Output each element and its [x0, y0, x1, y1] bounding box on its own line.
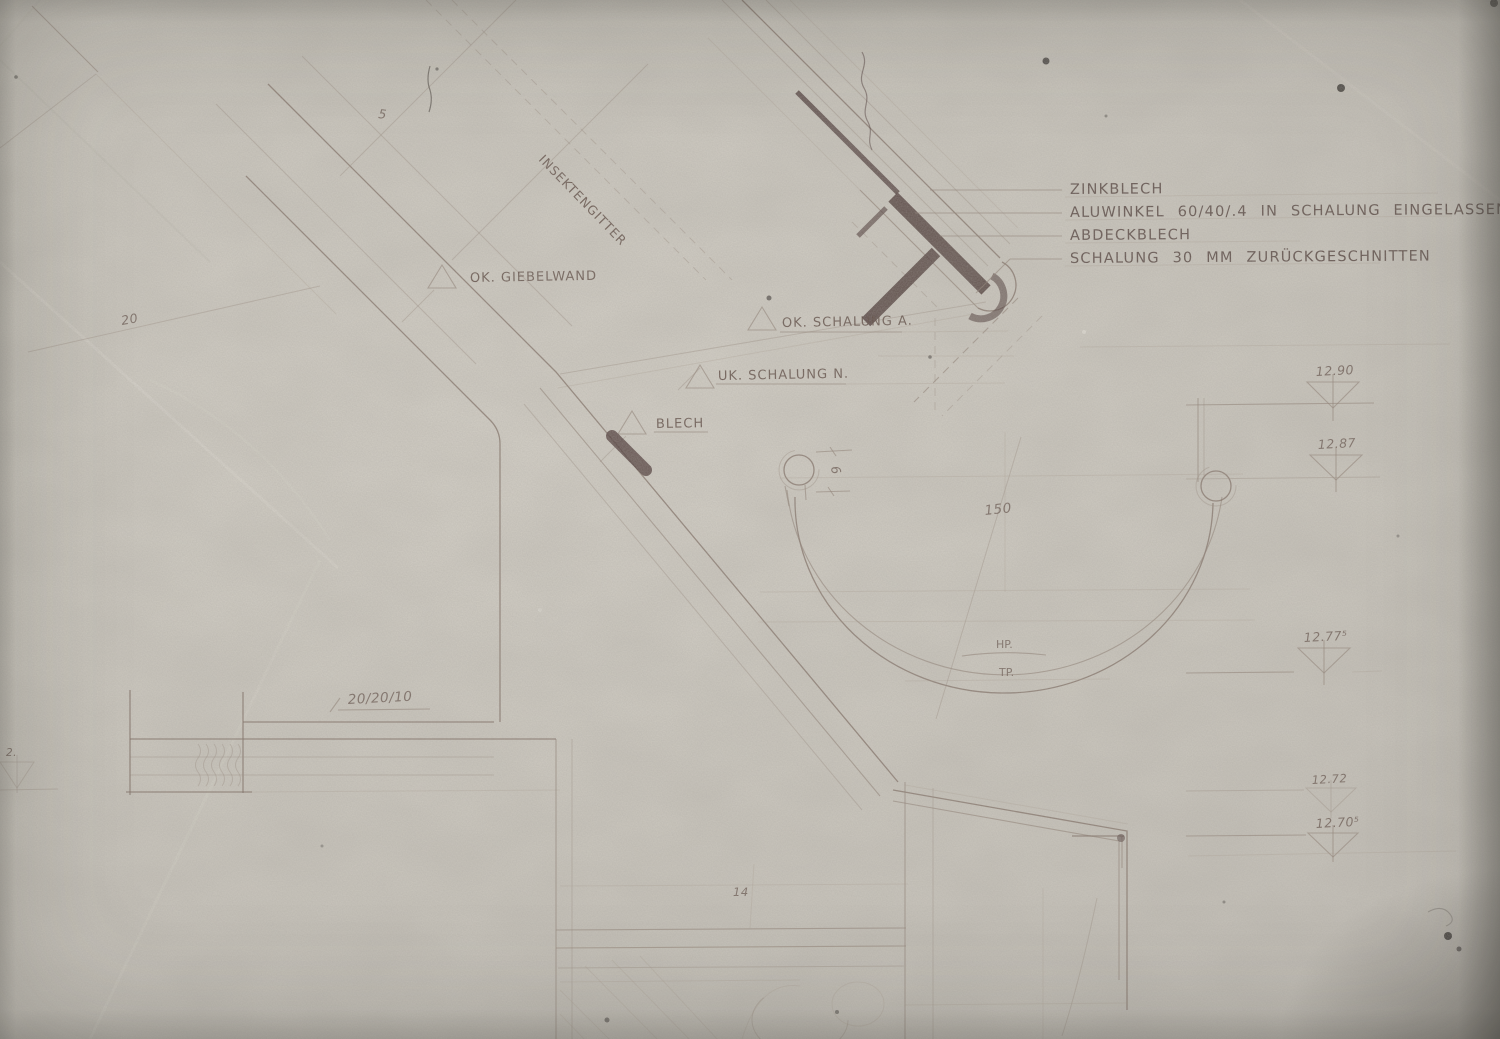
drawing-photo: ZINKBLECH ALUWINKEL 60/40/.4 IN SCHALUNG…	[0, 0, 1500, 1039]
photo-vignette	[0, 0, 1500, 1039]
